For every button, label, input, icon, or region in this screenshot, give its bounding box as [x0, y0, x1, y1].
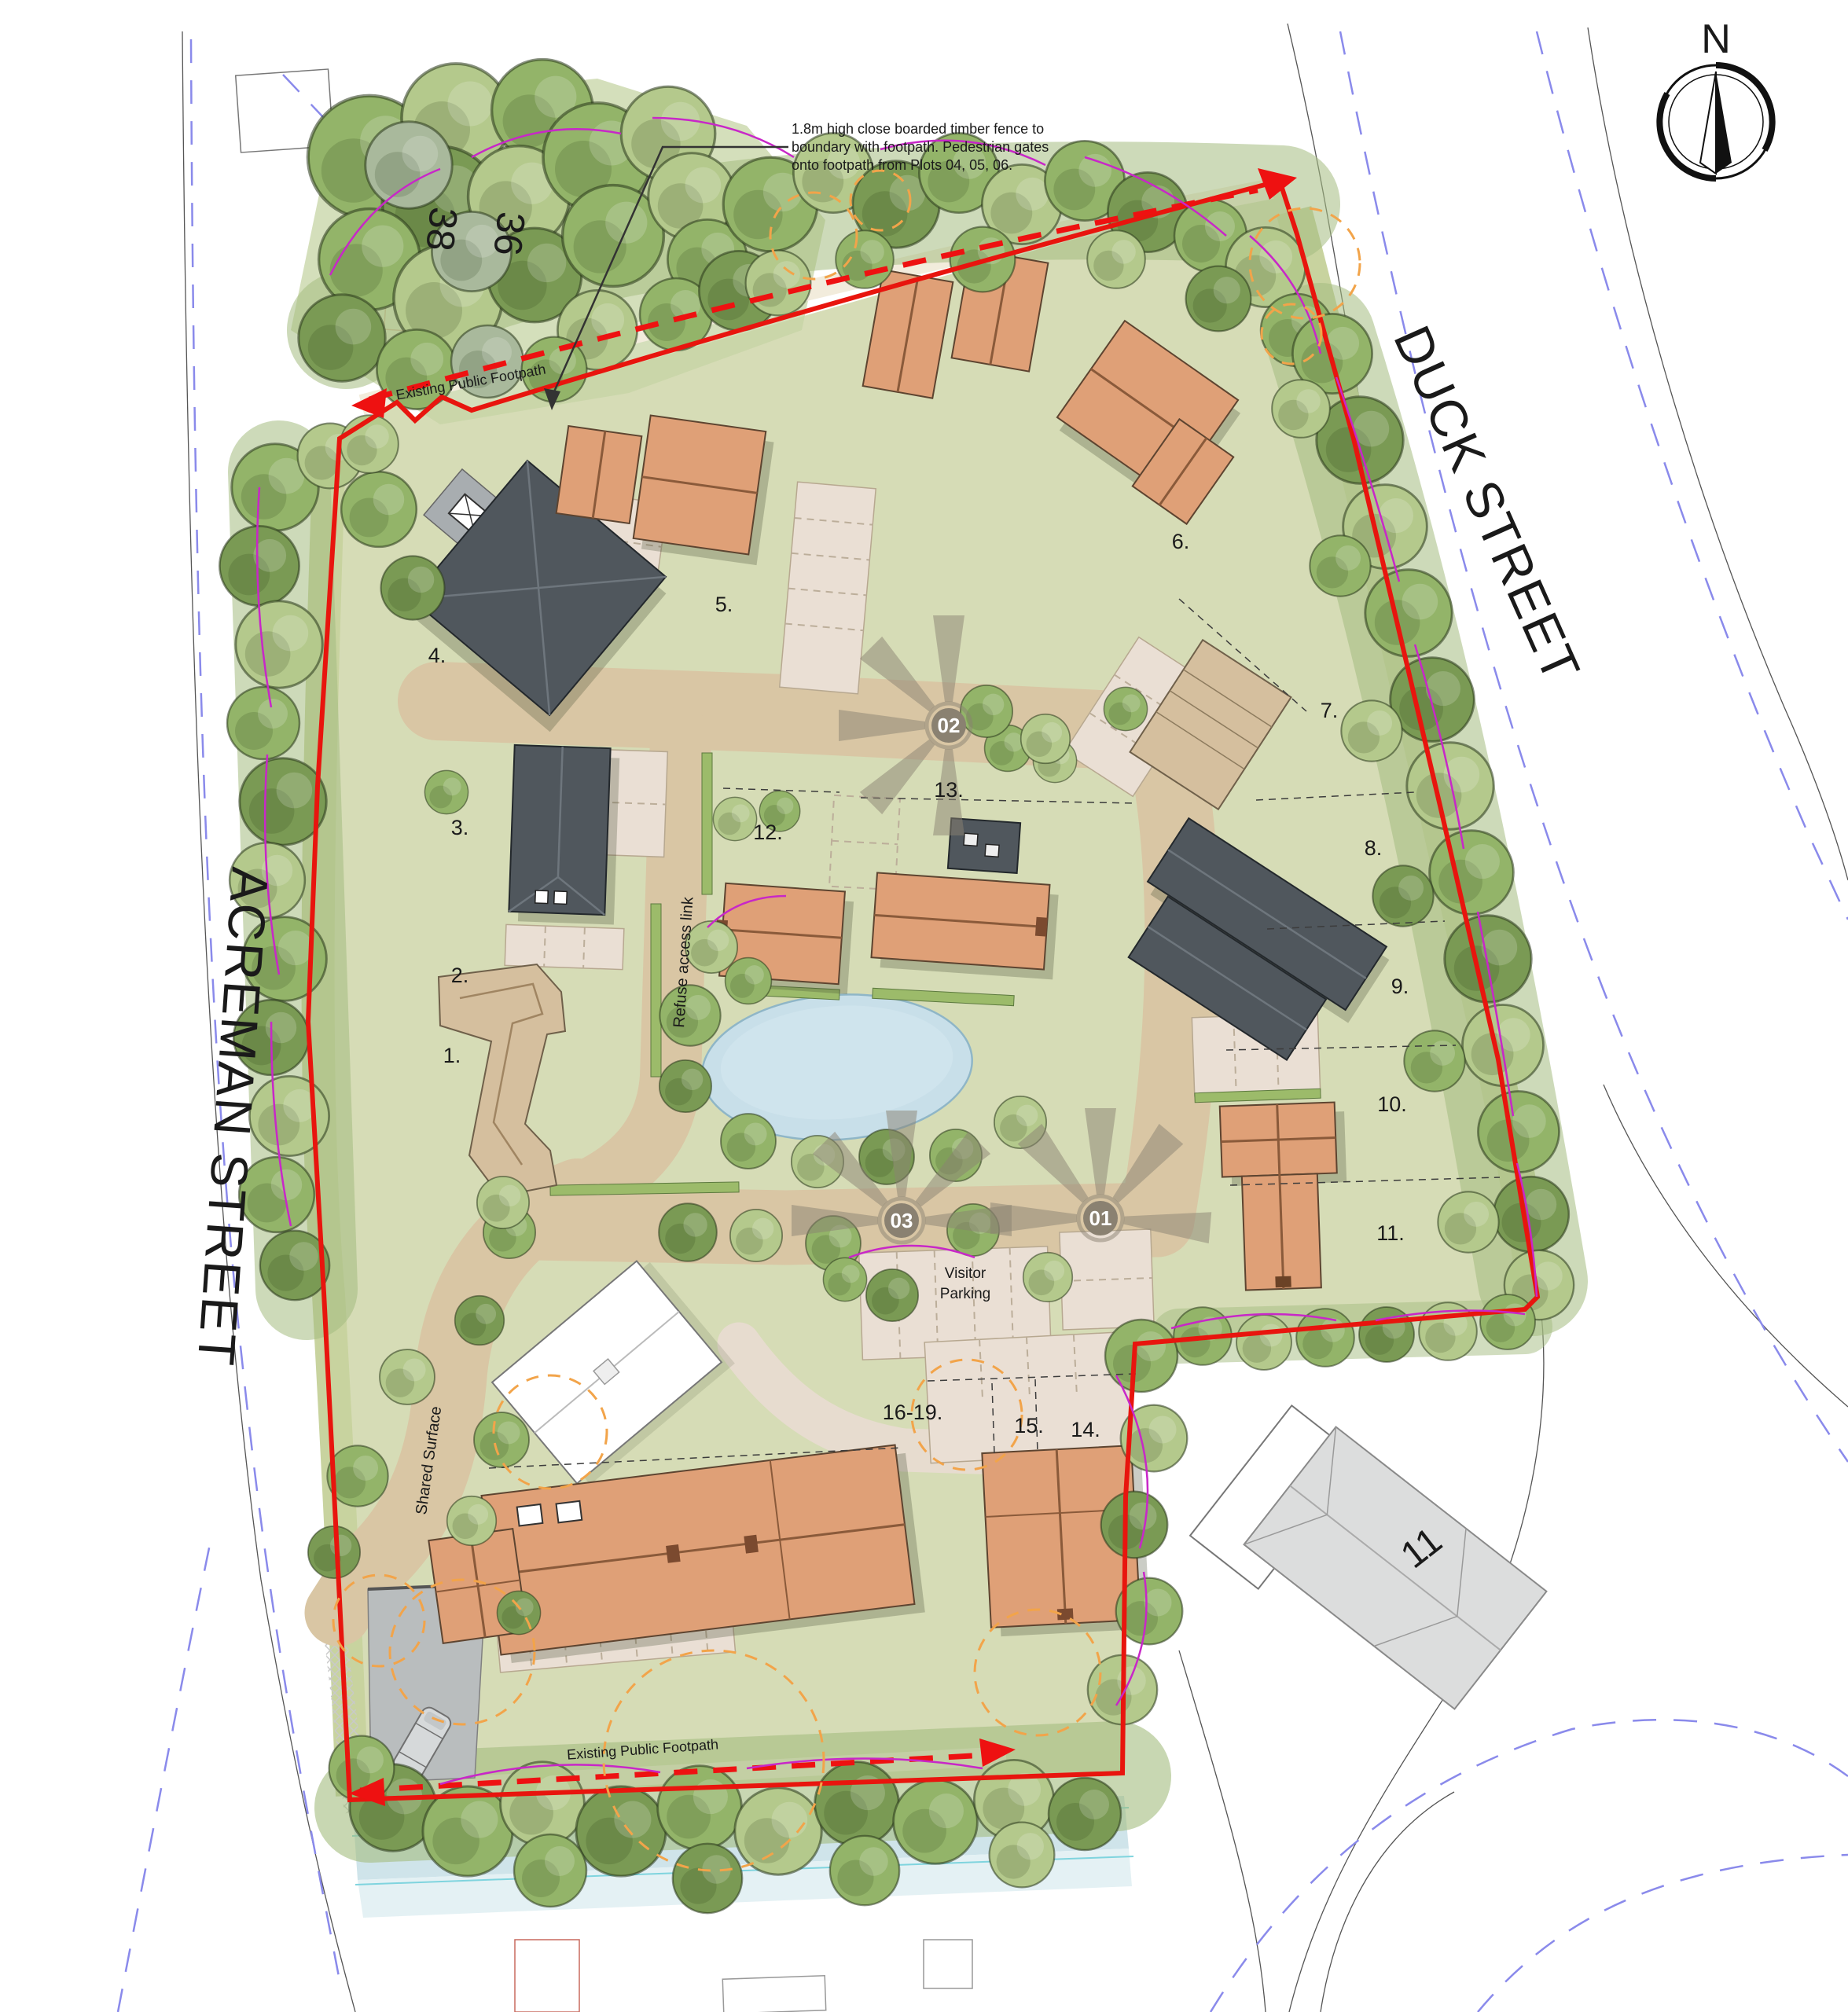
tree: [1021, 714, 1071, 764]
plot-label-11: 11.: [1376, 1221, 1405, 1245]
tree: [423, 1786, 513, 1876]
tree: [1101, 1492, 1168, 1559]
tree: [341, 472, 417, 547]
tree: [501, 1762, 585, 1846]
tree: [726, 958, 772, 1004]
plot-label-1: 1.: [443, 1044, 461, 1067]
plot-label-7: 7.: [1321, 699, 1339, 722]
plot-label-10: 10.: [1377, 1092, 1407, 1116]
tree: [1023, 1253, 1073, 1302]
offsite-fragment: [924, 1940, 972, 1988]
marker-02-label: 02: [938, 714, 961, 737]
plot-label-4: 4.: [428, 644, 446, 667]
annotation-line-2: boundary with footpath. Pedestrian gates: [792, 139, 1049, 155]
tree: [713, 797, 756, 840]
tree: [1310, 535, 1370, 596]
tree: [1372, 865, 1433, 926]
offsite-fragment: [722, 1976, 825, 2012]
plot-label-12: 12.: [753, 821, 783, 844]
plot-label-14: 14.: [1071, 1418, 1100, 1441]
tree: [477, 1177, 529, 1228]
tree: [219, 526, 299, 605]
site-plan-drawing: 02 03 01 1. 2. 3. 4. 5. 6. 7. 8. 9. 10. …: [0, 0, 1848, 2012]
tree: [340, 415, 399, 473]
tree: [1407, 743, 1493, 829]
tree: [1365, 570, 1452, 656]
tree: [1480, 1294, 1535, 1349]
plot-label-5: 5.: [715, 593, 733, 616]
tree: [1049, 1778, 1121, 1850]
visitor-parking-label-1: Visitor: [945, 1265, 986, 1282]
annotation-line-3: onto footpath from Plots 04, 05, 06.: [792, 157, 1012, 173]
building-plot-13: [871, 872, 1060, 979]
plot-label-8: 8.: [1365, 836, 1383, 860]
tree: [576, 1786, 666, 1876]
existing-no-36: 36: [485, 210, 534, 258]
annotation-line-1: 1.8m high close boarded timber fence to: [792, 121, 1044, 137]
tree: [381, 556, 445, 620]
tree: [830, 1836, 899, 1905]
tree: [1272, 380, 1330, 438]
building-plot-3: [509, 745, 620, 925]
tree: [424, 770, 468, 813]
tree: [815, 1762, 899, 1846]
tree: [1105, 1320, 1178, 1392]
tree: [659, 1060, 711, 1112]
tree: [1438, 1191, 1498, 1252]
tree: [1391, 658, 1475, 742]
tree: [299, 295, 385, 381]
tree: [1186, 266, 1251, 332]
plot-label-15: 15.: [1014, 1414, 1044, 1437]
plot-label-3: 3.: [451, 816, 469, 839]
tree: [447, 1496, 497, 1546]
tree: [455, 1296, 505, 1346]
tree: [227, 687, 299, 759]
tree: [961, 685, 1012, 737]
tree: [1445, 916, 1531, 1002]
tree: [236, 601, 322, 688]
tree: [380, 1349, 435, 1404]
tree: [497, 1591, 540, 1634]
tree: [673, 1844, 742, 1913]
offsite-fragment: [515, 1940, 579, 2012]
tree: [721, 1114, 776, 1169]
tree: [240, 758, 326, 845]
tree: [474, 1412, 529, 1467]
marker-01-label: 01: [1089, 1206, 1112, 1230]
tree: [1341, 700, 1402, 761]
tree: [1478, 1091, 1559, 1172]
plot-label-6: 6.: [1172, 530, 1190, 553]
north-label: N: [1701, 17, 1731, 62]
marker-03-label: 03: [891, 1209, 913, 1232]
tree: [659, 1203, 717, 1261]
tree: [894, 1780, 978, 1864]
tree: [1430, 831, 1514, 915]
tree: [1087, 230, 1145, 288]
building-plot-5a: [557, 426, 642, 523]
tree: [1404, 1030, 1464, 1091]
tree: [1104, 687, 1147, 730]
tree: [866, 1269, 918, 1321]
plot-label-16-19: 16-19.: [883, 1401, 943, 1424]
tree: [730, 1210, 782, 1261]
tree: [658, 1766, 742, 1850]
tree: [735, 1788, 821, 1874]
building-plot-5b: [632, 415, 775, 565]
tree: [514, 1834, 586, 1907]
tree: [1236, 1315, 1291, 1370]
tree: [746, 251, 811, 316]
north-arrow: N: [1659, 17, 1773, 178]
tree: [990, 1823, 1055, 1888]
plot-label-9: 9.: [1391, 975, 1409, 998]
existing-no-38: 38: [417, 205, 466, 253]
plot-label-2: 2.: [451, 964, 469, 987]
tree: [366, 122, 452, 208]
plot-label-13: 13.: [934, 778, 964, 802]
visitor-parking-label-2: Parking: [940, 1286, 990, 1302]
tree: [823, 1257, 866, 1301]
